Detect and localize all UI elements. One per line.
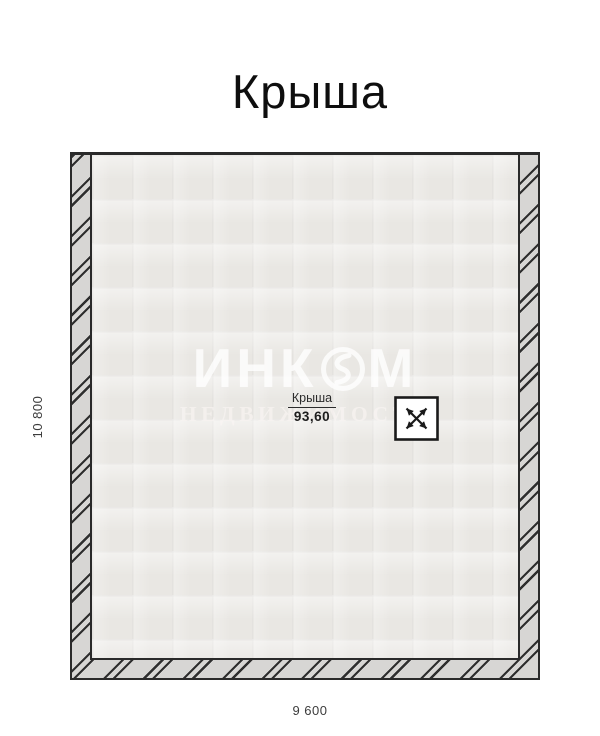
dimension-left: 10 800: [30, 367, 46, 467]
room-area: 93,60: [244, 409, 380, 424]
page-title: Крыша: [20, 64, 600, 119]
dimension-bottom: 9 600: [250, 703, 370, 718]
roof-hatch-icon: [394, 396, 439, 441]
room-label: Крыша 93,60: [244, 389, 380, 424]
room-name: Крыша: [288, 392, 336, 408]
floor-plan-page: Крыша ИНК М НЕДВИЖИМОСТЬ Крыша 93,60: [0, 0, 600, 736]
roof-plan: ИНК М НЕДВИЖИМОСТЬ Крыша 93,60: [70, 152, 540, 680]
